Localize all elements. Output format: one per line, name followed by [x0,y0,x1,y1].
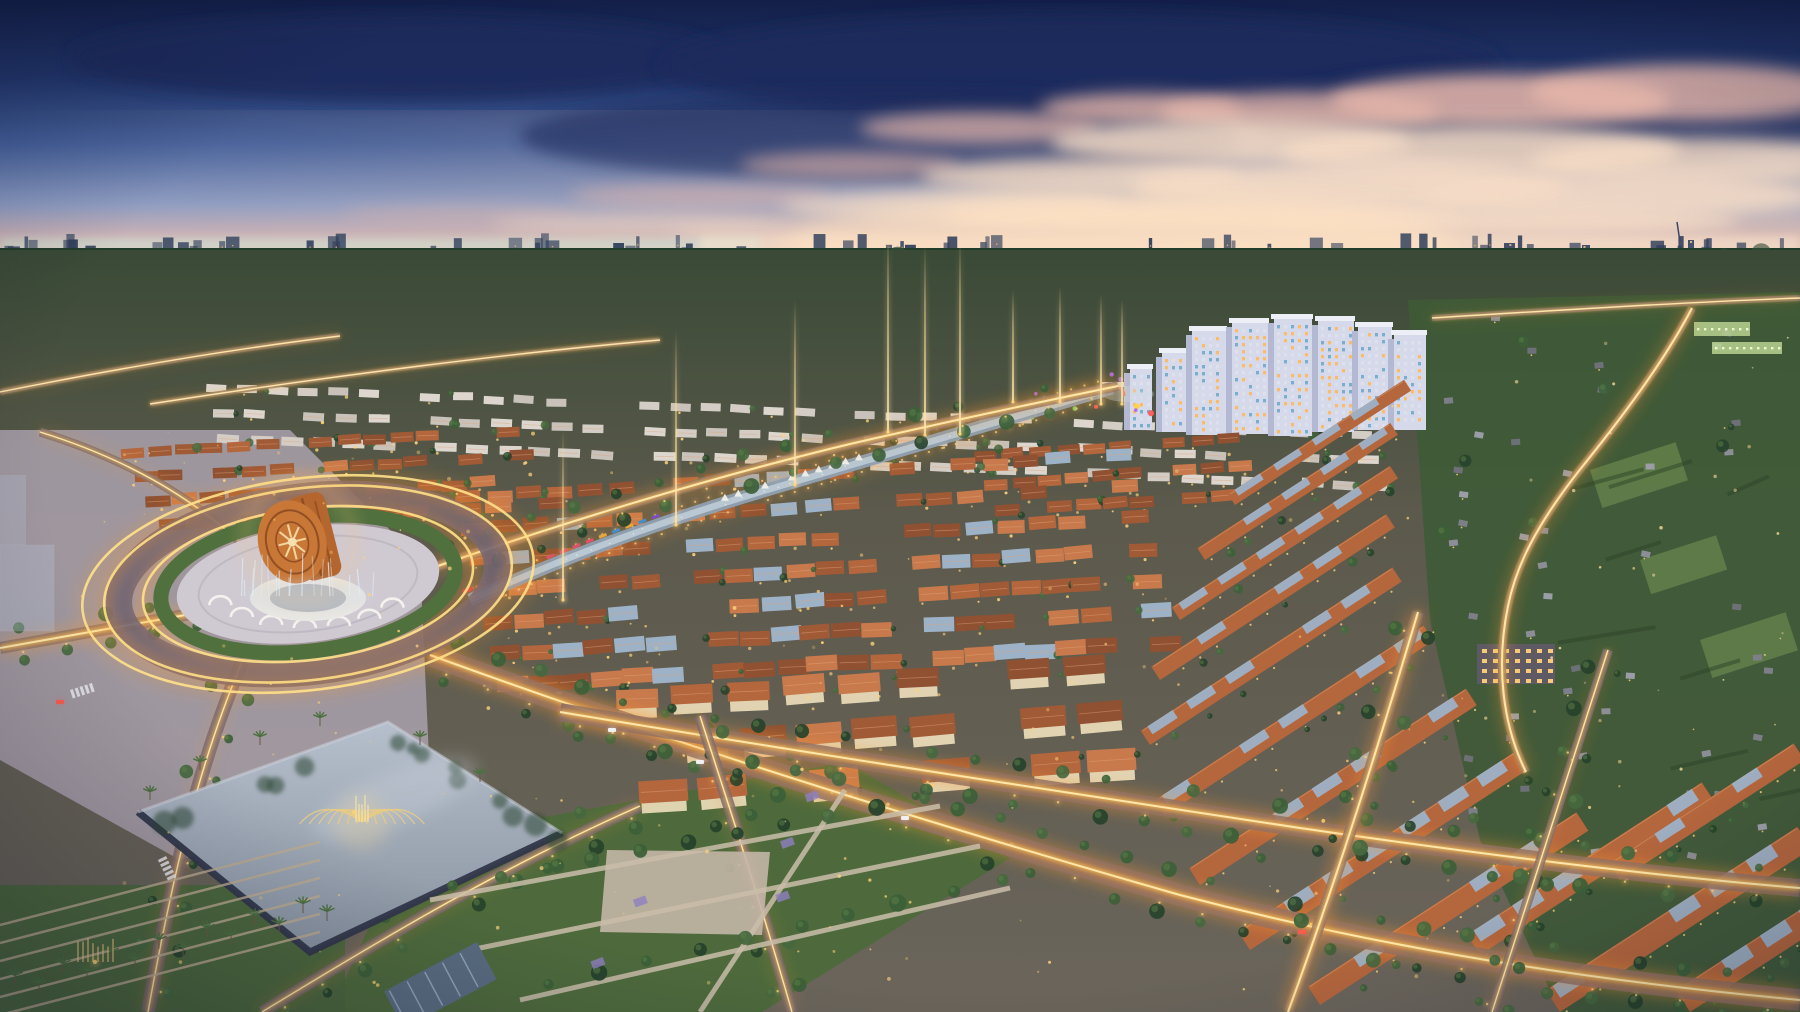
render-canvas [0,0,1800,1012]
vignette-layer [0,0,1800,1012]
township-aerial-render [0,0,1800,1012]
